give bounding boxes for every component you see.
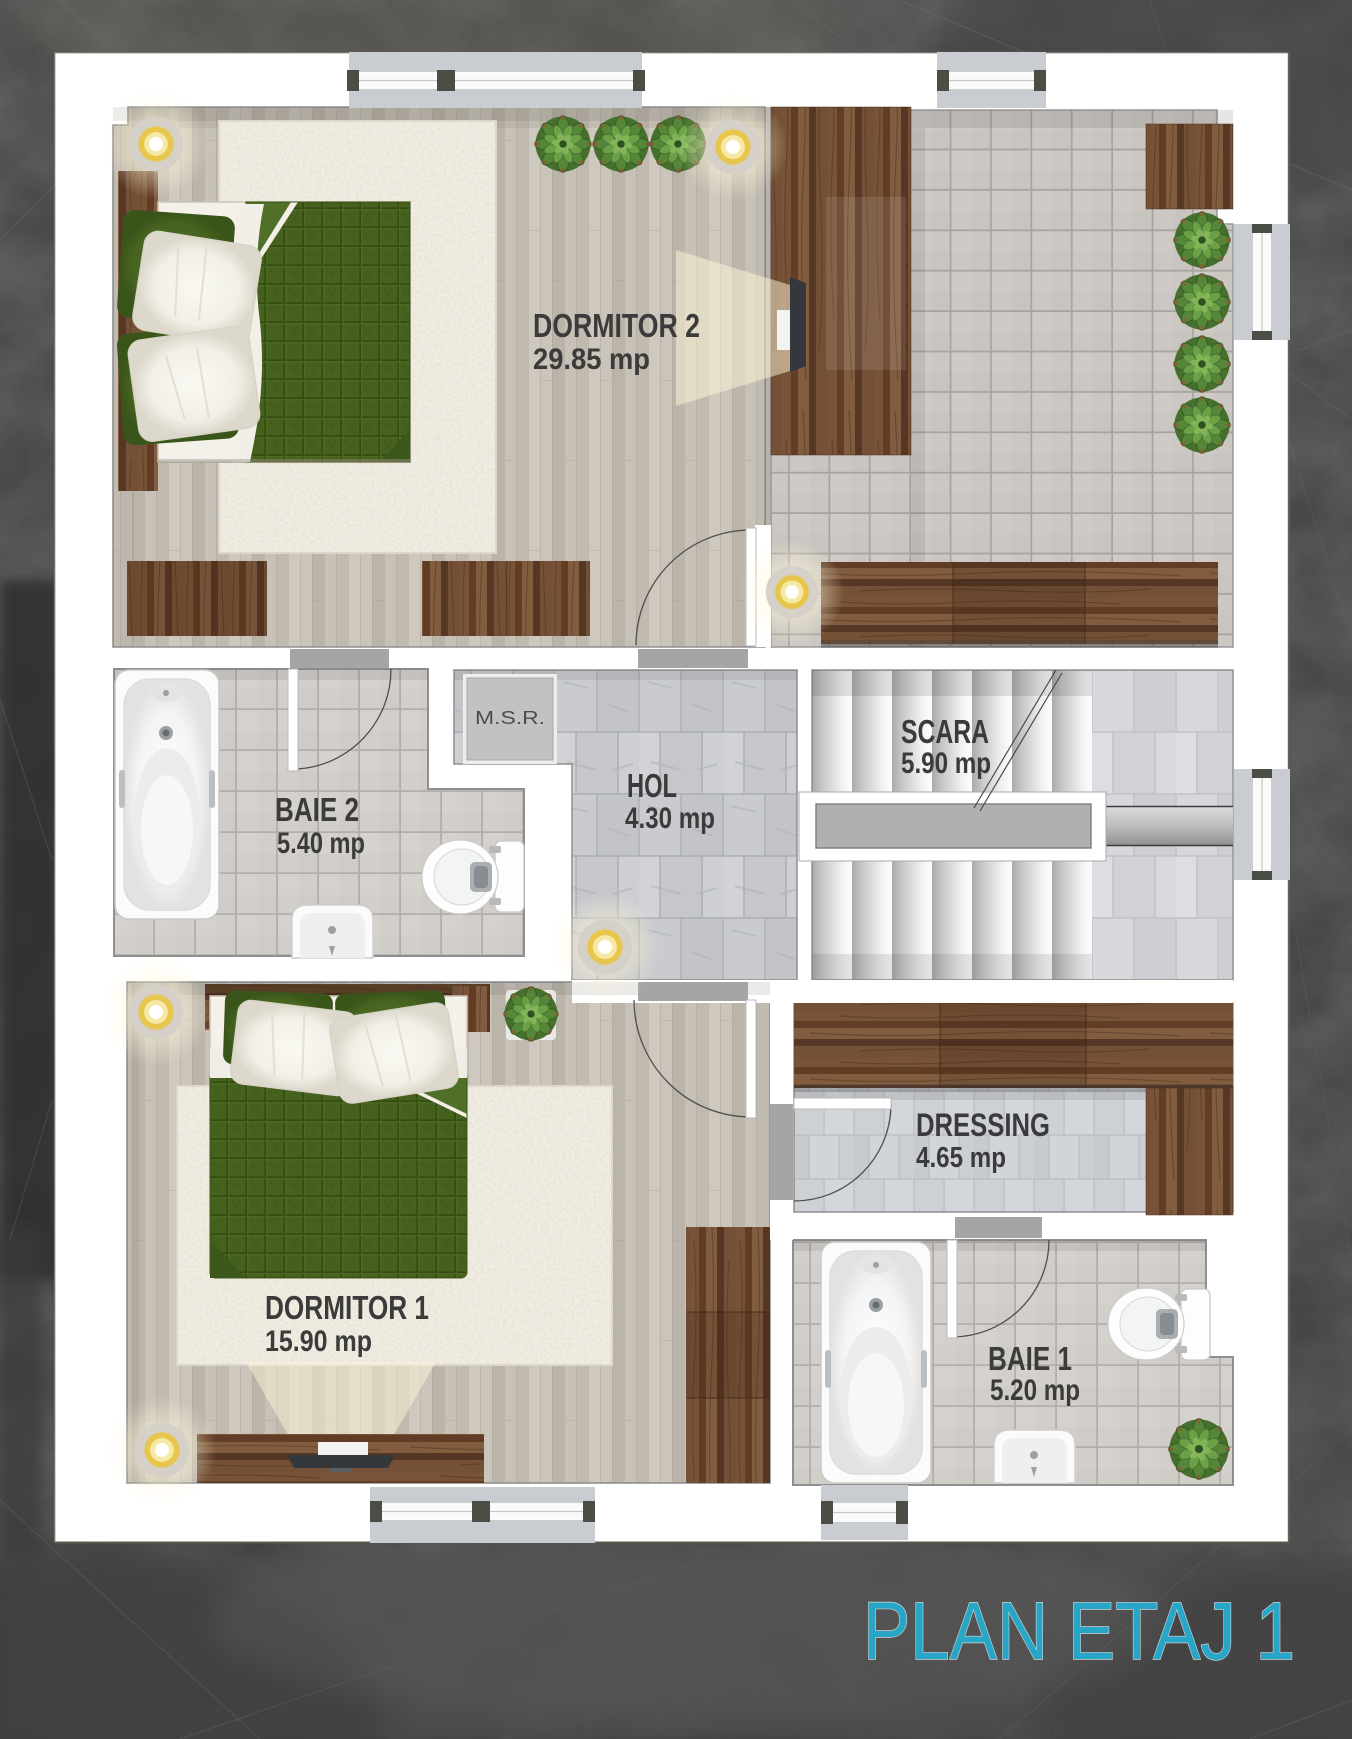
svg-text:HOL: HOL xyxy=(627,767,677,804)
svg-text:5.40 mp: 5.40 mp xyxy=(277,827,365,860)
svg-text:BAIE 1: BAIE 1 xyxy=(988,1340,1072,1377)
svg-text:4.65 mp: 4.65 mp xyxy=(916,1142,1006,1174)
svg-text:BAIE 2: BAIE 2 xyxy=(275,791,359,828)
svg-text:15.90 mp: 15.90 mp xyxy=(265,1325,372,1358)
svg-text:DORMITOR 2: DORMITOR 2 xyxy=(533,307,700,344)
svg-text:29.85 mp: 29.85 mp xyxy=(533,343,650,376)
svg-text:DRESSING: DRESSING xyxy=(916,1107,1050,1143)
svg-text:DORMITOR 1: DORMITOR 1 xyxy=(265,1289,429,1326)
svg-text:5.20 mp: 5.20 mp xyxy=(990,1374,1080,1407)
svg-text:M.S.R.: M.S.R. xyxy=(475,708,545,728)
svg-text:PLAN ETAJ 1: PLAN ETAJ 1 xyxy=(863,1586,1295,1677)
svg-text:5.90 mp: 5.90 mp xyxy=(901,747,991,780)
svg-text:SCARA: SCARA xyxy=(901,713,989,750)
svg-text:4.30 mp: 4.30 mp xyxy=(625,802,715,835)
